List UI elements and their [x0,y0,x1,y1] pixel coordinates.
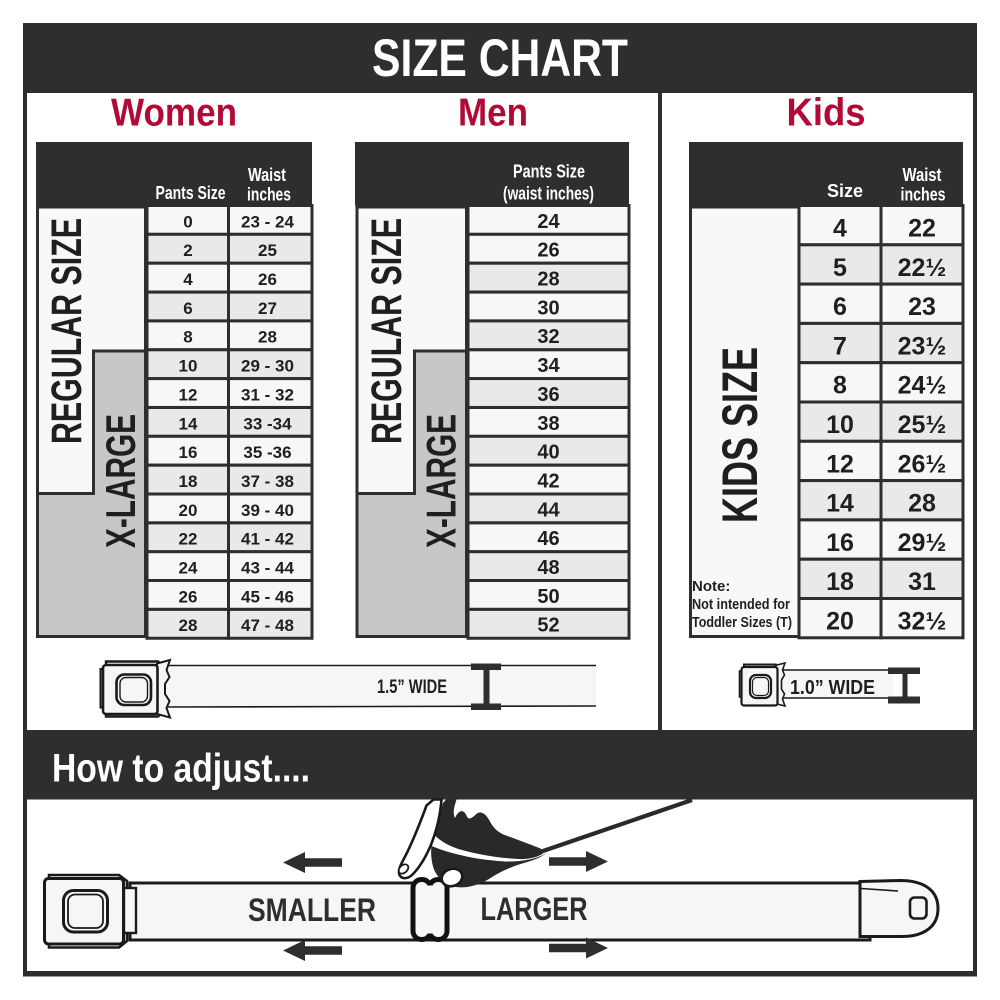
svg-text:30: 30 [537,297,559,319]
svg-text:44: 44 [537,499,560,521]
svg-text:43 - 44: 43 - 44 [241,559,294,578]
svg-text:Waist: Waist [903,165,942,185]
svg-text:34: 34 [537,355,560,377]
svg-text:32½: 32½ [898,608,947,636]
svg-text:4: 4 [183,270,193,289]
svg-text:28: 28 [258,328,277,347]
svg-text:40: 40 [537,442,559,464]
svg-text:33 -34: 33 -34 [243,414,292,433]
svg-text:14: 14 [179,414,198,433]
svg-text:Kids: Kids [787,92,866,135]
svg-text:35 -36: 35 -36 [243,443,291,462]
svg-text:46: 46 [537,528,559,550]
svg-text:23: 23 [908,293,936,321]
svg-text:18: 18 [179,472,198,491]
svg-text:7: 7 [833,332,847,360]
svg-text:X-LARGE: X-LARGE [97,414,144,548]
svg-text:25½: 25½ [898,411,947,439]
svg-text:28: 28 [537,269,559,291]
svg-text:6: 6 [183,299,192,318]
svg-text:41 - 42: 41 - 42 [241,530,294,549]
svg-text:REGULAR SIZE: REGULAR SIZE [363,218,411,444]
svg-text:10: 10 [179,357,198,376]
svg-text:26: 26 [258,270,277,289]
svg-text:6: 6 [833,293,847,321]
svg-text:Women: Women [111,92,237,135]
svg-text:20: 20 [179,501,198,520]
svg-text:28: 28 [908,490,936,518]
svg-text:X-LARGE: X-LARGE [418,414,465,548]
svg-text:18: 18 [826,568,854,596]
svg-text:2: 2 [183,241,192,260]
svg-text:45 - 46: 45 - 46 [241,587,294,606]
svg-text:16: 16 [826,529,854,557]
svg-text:10: 10 [826,411,854,439]
svg-text:SMALLER: SMALLER [248,892,376,928]
svg-text:16: 16 [179,443,198,462]
svg-text:REGULAR SIZE: REGULAR SIZE [43,218,91,444]
svg-text:4: 4 [833,215,847,243]
svg-text:Size: Size [827,181,863,201]
svg-text:1.0” WIDE: 1.0” WIDE [790,677,875,699]
svg-text:38: 38 [537,413,559,435]
svg-text:26: 26 [537,240,559,262]
svg-text:Not intended for: Not intended for [692,596,790,613]
svg-text:31 - 32: 31 - 32 [241,385,294,404]
svg-text:26½: 26½ [898,450,947,478]
svg-text:32: 32 [537,326,559,348]
svg-text:37 - 38: 37 - 38 [241,472,294,491]
svg-text:31: 31 [908,568,936,596]
svg-text:47 - 48: 47 - 48 [241,616,294,635]
svg-text:39 - 40: 39 - 40 [241,501,294,520]
svg-text:20: 20 [826,608,854,636]
svg-text:Pants Size: Pants Size [513,162,585,182]
svg-text:22: 22 [908,215,936,243]
svg-text:25: 25 [258,241,277,260]
svg-text:How to adjust....: How to adjust.... [52,747,310,791]
svg-text:(waist inches): (waist inches) [503,184,594,204]
svg-text:inches: inches [247,185,291,205]
svg-text:Pants Size: Pants Size [156,183,226,203]
svg-text:SIZE CHART: SIZE CHART [372,29,628,88]
svg-text:23 - 24: 23 - 24 [241,212,294,231]
svg-text:Toddler Sizes (T): Toddler Sizes (T) [692,614,792,631]
svg-text:Men: Men [458,92,528,135]
svg-text:8: 8 [833,372,847,400]
svg-text:23½: 23½ [898,332,947,360]
svg-text:52: 52 [537,615,559,637]
svg-text:5: 5 [833,254,847,282]
svg-text:22½: 22½ [898,254,947,282]
svg-text:22: 22 [179,530,198,549]
svg-text:24: 24 [537,211,560,233]
svg-text:1.5” WIDE: 1.5” WIDE [377,677,447,698]
svg-text:29 - 30: 29 - 30 [241,357,294,376]
svg-text:Note:: Note: [692,578,730,595]
svg-text:12: 12 [179,385,198,404]
svg-text:12: 12 [826,450,854,478]
svg-text:24½: 24½ [898,372,947,400]
svg-text:8: 8 [183,328,192,347]
svg-text:28: 28 [179,616,198,635]
svg-text:Waist: Waist [248,165,286,185]
svg-text:42: 42 [537,470,559,492]
svg-text:LARGER: LARGER [481,891,588,927]
svg-text:48: 48 [537,557,559,579]
svg-text:0: 0 [183,212,192,231]
svg-text:26: 26 [179,587,198,606]
svg-text:KIDS SIZE: KIDS SIZE [712,347,768,523]
svg-text:27: 27 [258,299,277,318]
svg-text:50: 50 [537,586,559,608]
svg-text:14: 14 [826,490,854,518]
svg-text:24: 24 [179,559,198,578]
svg-text:36: 36 [537,384,559,406]
svg-text:29½: 29½ [898,529,947,557]
svg-text:inches: inches [901,185,946,205]
